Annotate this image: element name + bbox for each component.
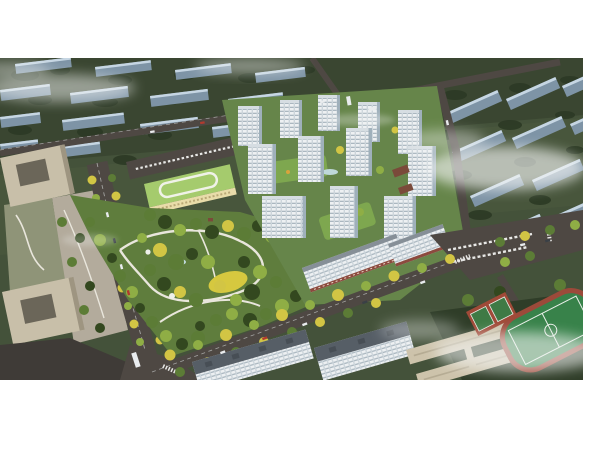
park-hut xyxy=(208,218,213,221)
courtyard-pool xyxy=(322,169,338,175)
aerial-rendering-image xyxy=(0,0,600,450)
residential-slab xyxy=(262,196,306,238)
residential-tower xyxy=(238,106,262,146)
residential-tower xyxy=(298,136,324,182)
screenshot-canvas xyxy=(0,0,600,450)
residential-tower xyxy=(346,128,372,176)
residential-tower xyxy=(280,100,302,138)
park-pavilion xyxy=(169,293,175,299)
residential-tower xyxy=(318,95,340,131)
residential-tower xyxy=(330,186,358,238)
residential-tower xyxy=(248,144,276,194)
park-pavilion-2 xyxy=(145,249,150,254)
